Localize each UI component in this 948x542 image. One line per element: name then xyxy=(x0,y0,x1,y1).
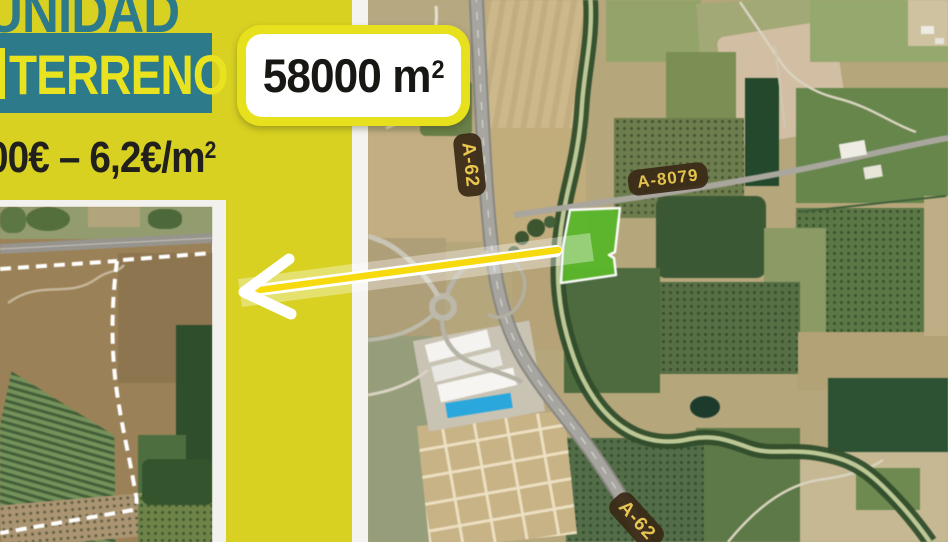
area-badge: 58000 m2 xyxy=(237,25,470,126)
road-label-text: A-8079 xyxy=(636,165,700,191)
highlighted-plot xyxy=(561,208,620,283)
area-superscript: 2 xyxy=(432,56,444,84)
price-superscript: 2 xyxy=(205,137,216,164)
cut-letter-fragment xyxy=(0,48,5,99)
price-value: 00€ – 6,2€/m xyxy=(0,133,205,182)
headline-banner: TERRENO xyxy=(0,33,212,113)
plot-closeup-inset xyxy=(0,200,226,542)
inset-artwork xyxy=(0,207,212,542)
area-value: 58000 m xyxy=(263,49,431,102)
price-text: 00€ – 6,2€/m2 xyxy=(0,133,216,183)
banner-text: TERRENO xyxy=(9,42,228,107)
inset-features xyxy=(0,207,212,542)
land-sale-flyer: A-62 A-8079 A-62 UNIDAD TERRENO 00€ – 6,… xyxy=(0,0,948,542)
area-badge-text: 58000 m2 xyxy=(263,48,444,103)
area-badge-inner: 58000 m2 xyxy=(246,34,461,117)
road-label-text: A-62 xyxy=(457,141,483,188)
